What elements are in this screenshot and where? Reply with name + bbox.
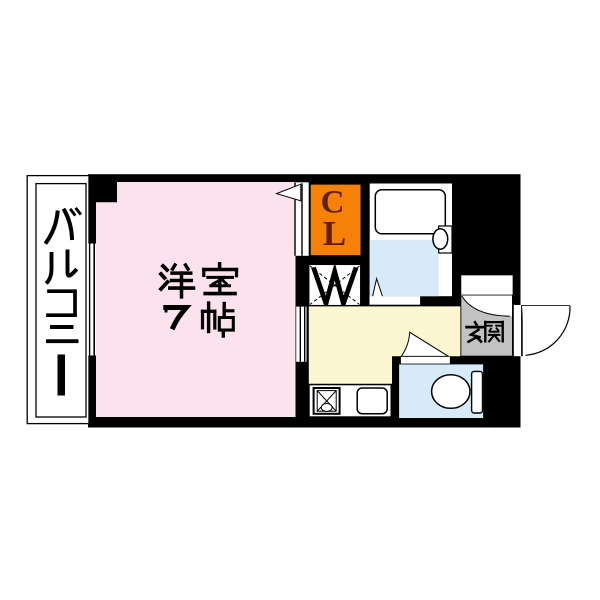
svg-text:L: L [323,214,346,253]
